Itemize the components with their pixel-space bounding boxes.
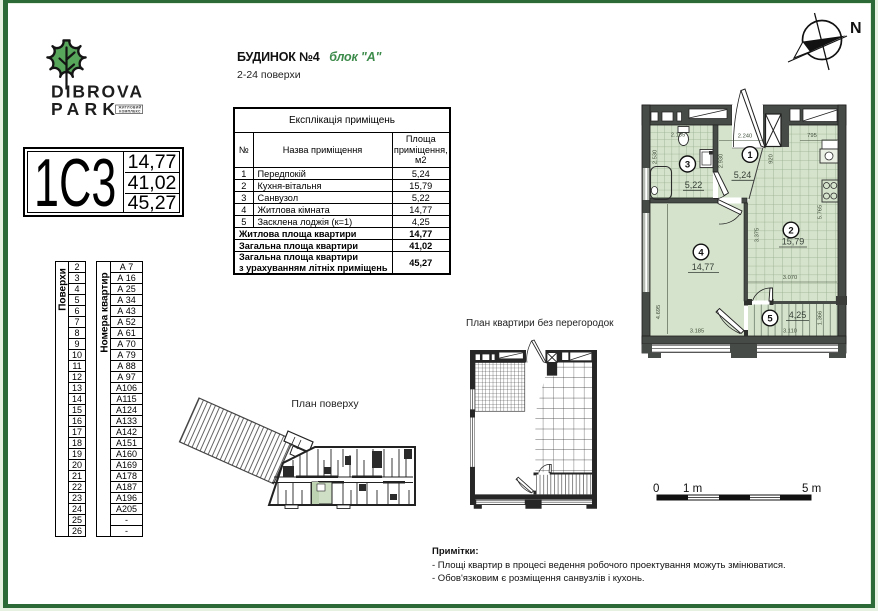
svg-text:PARK: PARK	[51, 99, 115, 119]
svg-text:5,24: 5,24	[734, 170, 752, 180]
svg-text:2.930: 2.930	[719, 154, 725, 169]
svg-text:15,79: 15,79	[782, 237, 805, 247]
svg-text:2.240: 2.240	[738, 134, 753, 140]
svg-text:4.695: 4.695	[656, 305, 662, 320]
svg-text:1 m: 1 m	[683, 483, 702, 495]
svg-text:КОМПЛЕКС: КОМПЛЕКС	[119, 109, 141, 113]
svg-text:4,25: 4,25	[789, 310, 807, 320]
svg-text:2.530: 2.530	[653, 150, 659, 165]
svg-text:N: N	[850, 20, 862, 37]
svg-text:920: 920	[769, 154, 775, 164]
svg-text:3.070: 3.070	[783, 275, 798, 281]
svg-text:2: 2	[788, 226, 793, 237]
svg-text:5.765: 5.765	[818, 205, 824, 220]
svg-text:14,77: 14,77	[692, 262, 715, 272]
svg-text:0: 0	[653, 483, 659, 495]
svg-text:1: 1	[747, 150, 753, 161]
svg-text:2.185: 2.185	[671, 133, 686, 139]
svg-text:3.375: 3.375	[755, 228, 761, 243]
svg-text:1.366: 1.366	[818, 311, 824, 326]
svg-text:3.110: 3.110	[783, 329, 797, 335]
svg-text:3: 3	[685, 160, 690, 171]
svg-text:5: 5	[767, 314, 773, 325]
svg-text:4: 4	[698, 248, 704, 259]
svg-text:795: 795	[807, 133, 817, 139]
svg-text:5,22: 5,22	[685, 180, 703, 190]
svg-text:5 m: 5 m	[802, 483, 821, 495]
svg-text:3.185: 3.185	[690, 329, 705, 335]
